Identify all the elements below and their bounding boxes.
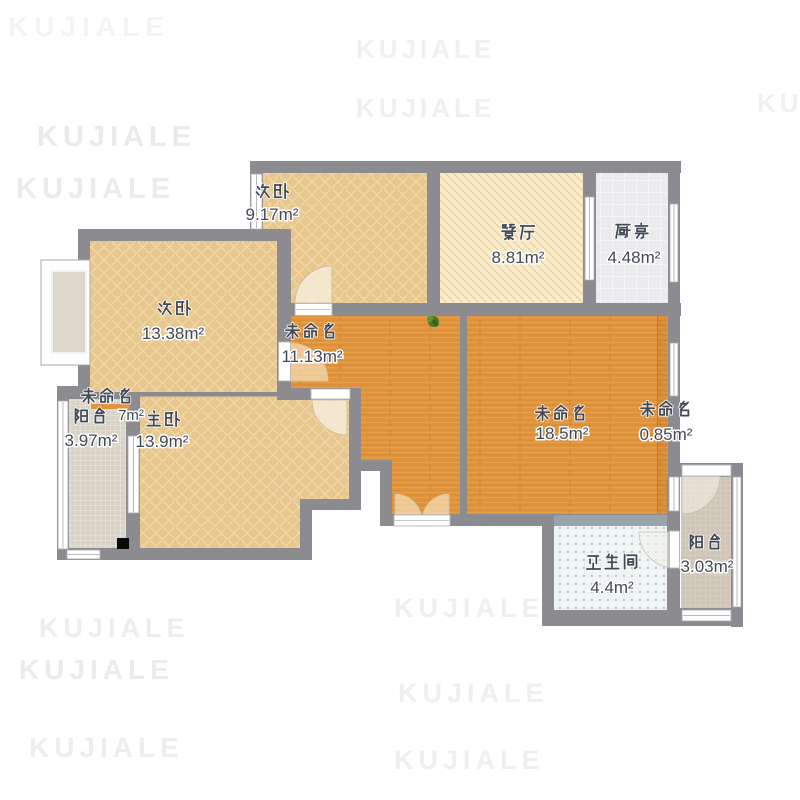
svg-text:KUJIALE: KUJIALE — [29, 732, 184, 763]
svg-text:3.97m²: 3.97m² — [65, 431, 118, 450]
svg-text:KUJIALE: KUJIALE — [19, 654, 174, 685]
svg-text:KUJIALE: KUJIALE — [378, 544, 529, 574]
svg-text:11.13m²: 11.13m² — [281, 347, 342, 366]
svg-text:KUJIALE: KUJIALE — [356, 34, 495, 64]
svg-text:0.85m²: 0.85m² — [640, 425, 693, 444]
svg-text:KUJIALE: KUJIALE — [394, 593, 545, 623]
svg-text:KUJIALE: KUJIALE — [39, 613, 190, 643]
svg-text:KUJIALE: KUJIALE — [16, 173, 175, 205]
svg-text:KUJIALE: KUJIALE — [356, 93, 495, 123]
svg-text:18.5m²: 18.5m² — [536, 424, 589, 443]
svg-text:KUJIALE: KUJIALE — [394, 745, 545, 775]
svg-text:13.9m²: 13.9m² — [136, 432, 189, 451]
svg-text:KUJIALE: KUJIALE — [398, 678, 549, 708]
svg-text:4.48m²: 4.48m² — [608, 248, 661, 267]
svg-text:3.03m²: 3.03m² — [681, 557, 734, 576]
svg-text:4.4m²: 4.4m² — [590, 578, 634, 597]
svg-text:13.38m²: 13.38m² — [142, 324, 205, 343]
svg-text:8.81m²: 8.81m² — [492, 248, 545, 267]
svg-text:KUJIALE: KUJIALE — [757, 88, 800, 118]
svg-text:7m²: 7m² — [118, 407, 144, 424]
svg-text:KUJIALE: KUJIALE — [8, 11, 170, 42]
svg-text:9.17m²: 9.17m² — [246, 205, 299, 224]
svg-text:KUJIALE: KUJIALE — [37, 121, 196, 153]
